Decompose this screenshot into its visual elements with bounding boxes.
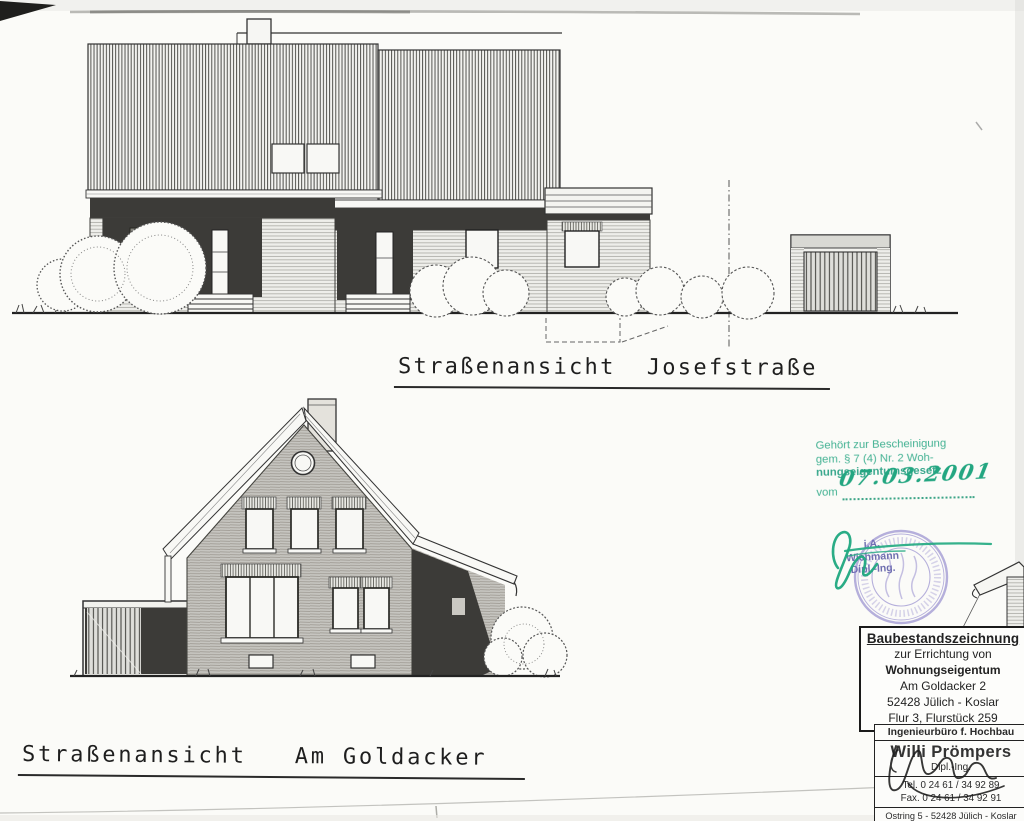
window <box>565 231 599 267</box>
garage <box>791 235 890 313</box>
drawing-title-josefstrasse: Straßenansicht Josefstraße <box>394 354 830 390</box>
baubestand-info-box: Baubestandszeichnung zur Errichtung von … <box>859 626 1024 732</box>
title-text: Straßenansicht Am Goldacker <box>22 742 487 771</box>
josefstrasse-elevation <box>12 19 958 348</box>
title-text: Straßenansicht Josefstraße <box>398 354 818 381</box>
entry-door <box>376 232 393 297</box>
basement-vent <box>351 655 375 668</box>
chimney <box>247 19 271 44</box>
info-box-line: Wohnungseigentum <box>862 662 1024 678</box>
firm-address: Ostring 5 - 52428 Jülich - Koslar <box>875 807 1024 821</box>
info-box-title: Baubestandszeichnung <box>862 631 1024 646</box>
firm-degree: Dipl.-Ing. <box>875 762 1024 776</box>
info-box-line: 52428 Jülich - Koslar <box>862 694 1024 710</box>
info-box-line: zur Errichtung von <box>862 646 1024 662</box>
am-goldacker-elevation <box>70 399 567 677</box>
fascia <box>333 200 562 208</box>
firm-tel: Tel. 0 24 61 / 34 92 89 <box>875 779 1024 792</box>
entry-recess <box>337 218 413 300</box>
wing-vent <box>452 598 465 615</box>
firm-contact: Tel. 0 24 61 / 34 92 89 Fax. 0 24 61 / 3… <box>875 776 1024 807</box>
info-box-line: Am Goldacker 2 <box>862 678 1024 694</box>
engineering-firm-box: Ingenieurbüro f. Hochbau Willi Prömpers … <box>874 724 1024 821</box>
cellar-shaft-dashed <box>546 318 668 342</box>
window-strip <box>212 230 228 294</box>
date-dotted-line: 07.03.2001 <box>843 481 975 500</box>
roof-window <box>307 144 339 173</box>
scanned-elevation-sheet: Straßenansicht Josefstraße Straßenansich… <box>0 0 1024 821</box>
stamp-vom-label: vom <box>816 487 838 501</box>
handwritten-date: 07.03.2001 <box>839 464 994 486</box>
entry-steps <box>346 294 410 313</box>
roof-window <box>272 144 304 173</box>
drawing-title-am-goldacker: Straßenansicht Am Goldacker <box>18 742 526 780</box>
firm-name: Willi Prömpers <box>875 741 1024 762</box>
firm-fax: Fax. 0 24 61 / 34 92 91 <box>875 792 1024 805</box>
certification-stamp: Gehört zur Bescheinigung gem. § 7 (4) Nr… <box>815 436 1024 500</box>
firm-header: Ingenieurbüro f. Hochbau <box>875 725 1024 741</box>
upper-windows <box>242 497 366 553</box>
wing-roof <box>378 50 560 200</box>
seal-signer-text: i.A. Wichmann Dipl.-Ing. <box>845 537 900 577</box>
downpipe <box>165 556 171 602</box>
basement-vent <box>249 655 273 668</box>
garage-door <box>804 252 877 311</box>
garage <box>83 601 190 676</box>
entry-steps <box>188 294 253 313</box>
